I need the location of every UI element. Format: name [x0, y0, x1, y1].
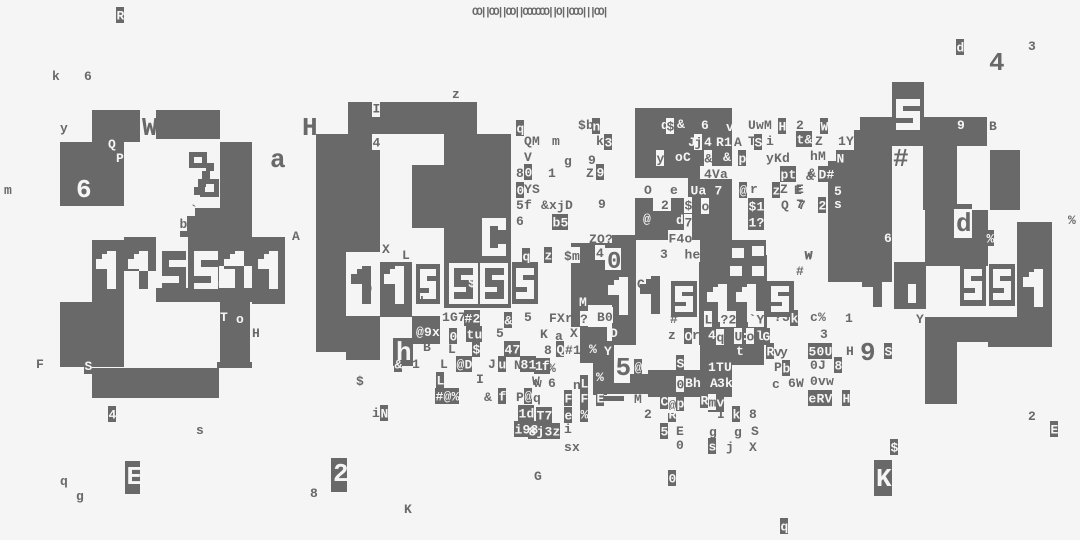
svg-text:E: E	[794, 183, 802, 198]
svg-text:k: k	[733, 408, 741, 423]
svg-text:E: E	[127, 462, 143, 492]
svg-text:t: t	[736, 344, 744, 359]
svg-text:1: 1	[724, 135, 732, 150]
svg-text:P: P	[116, 151, 124, 166]
svg-text:?: ?	[605, 232, 613, 247]
svg-text:t: t	[797, 133, 805, 148]
svg-text:Q: Q	[108, 137, 116, 152]
svg-text:S: S	[677, 357, 685, 372]
svg-text:Q: Q	[781, 198, 789, 213]
svg-text:%: %	[1068, 213, 1076, 228]
svg-text:s: s	[196, 423, 204, 438]
svg-text:5: 5	[616, 353, 632, 383]
svg-text:g: g	[564, 154, 572, 169]
svg-text:f: f	[524, 198, 532, 213]
svg-text:r: r	[750, 182, 758, 197]
svg-text:H: H	[252, 326, 260, 341]
svg-text:Z: Z	[586, 166, 594, 181]
svg-text:s: s	[564, 440, 572, 455]
svg-text:8: 8	[749, 407, 757, 422]
svg-text:K: K	[774, 151, 782, 166]
svg-text:F: F	[565, 392, 573, 407]
svg-text:Y: Y	[916, 312, 924, 327]
svg-text:a: a	[270, 145, 286, 175]
svg-text:@: @	[643, 212, 651, 227]
svg-text:F: F	[549, 311, 557, 326]
svg-text:i: i	[372, 406, 380, 421]
svg-text:w: w	[826, 374, 834, 389]
svg-text:z: z	[545, 249, 553, 264]
svg-text:#: #	[465, 312, 473, 327]
svg-text:`: `	[190, 203, 198, 218]
svg-text:4: 4	[505, 343, 513, 358]
svg-text:G: G	[450, 310, 458, 325]
svg-text:#: #	[565, 343, 573, 358]
svg-text:3: 3	[820, 327, 828, 342]
svg-text:z: z	[668, 328, 676, 343]
svg-text:E: E	[1051, 423, 1059, 438]
svg-text:X: X	[557, 311, 565, 326]
svg-text:D: D	[465, 358, 473, 373]
svg-text:S: S	[885, 345, 893, 360]
svg-text:F: F	[669, 232, 677, 247]
svg-text:W: W	[805, 249, 813, 264]
svg-text:I: I	[476, 372, 484, 387]
svg-text:1: 1	[749, 216, 757, 231]
svg-text:@: @	[635, 361, 643, 376]
svg-text:B: B	[597, 310, 605, 325]
svg-text:r: r	[565, 311, 573, 326]
svg-text:?: ?	[757, 216, 765, 231]
svg-text:&: &	[705, 152, 713, 167]
svg-text:B: B	[989, 119, 997, 134]
svg-text:&: &	[484, 390, 492, 405]
svg-text:y: y	[60, 121, 68, 136]
svg-text:&: &	[505, 314, 513, 329]
svg-text:M: M	[532, 134, 540, 149]
svg-text:7: 7	[545, 409, 553, 424]
svg-text:W: W	[142, 113, 158, 143]
svg-text:B: B	[423, 340, 431, 355]
svg-text:?: ?	[721, 313, 729, 328]
svg-text:B: B	[685, 376, 693, 391]
svg-text:8: 8	[521, 358, 529, 373]
svg-text:`: `	[749, 313, 757, 328]
svg-text:Y: Y	[524, 182, 532, 197]
svg-text:q: q	[533, 391, 541, 406]
svg-text:J: J	[488, 357, 496, 372]
svg-text:Y: Y	[604, 344, 612, 359]
svg-text:v: v	[818, 374, 826, 389]
svg-text:0: 0	[810, 358, 818, 373]
svg-text:j: j	[726, 440, 734, 455]
svg-text:h: h	[810, 149, 818, 164]
svg-text:y: y	[780, 345, 788, 360]
svg-text:%: %	[589, 342, 597, 357]
svg-text:E: E	[676, 424, 684, 439]
svg-text:0: 0	[669, 472, 677, 487]
svg-text:q: q	[717, 331, 725, 346]
svg-text:w: w	[756, 118, 764, 133]
svg-text:4: 4	[708, 328, 716, 343]
svg-text:0: 0	[607, 249, 621, 276]
svg-text:Z: Z	[815, 134, 823, 149]
svg-text:H: H	[302, 113, 318, 143]
svg-text:1: 1	[845, 311, 853, 326]
svg-text:V: V	[825, 392, 833, 407]
svg-text:#: #	[670, 312, 678, 327]
svg-text:2: 2	[333, 459, 349, 489]
svg-text:i: i	[564, 422, 572, 437]
svg-text:y: y	[766, 151, 774, 166]
svg-text:N: N	[837, 152, 845, 167]
svg-text:D: D	[610, 326, 618, 341]
svg-text:j: j	[557, 199, 565, 214]
svg-text:W: W	[796, 376, 804, 391]
svg-text:6: 6	[76, 175, 92, 205]
svg-text:Q: Q	[524, 134, 532, 149]
svg-text:C: C	[661, 395, 669, 410]
svg-text:s: s	[709, 440, 717, 455]
svg-text:$: $	[685, 199, 693, 214]
svg-text:y: y	[657, 152, 665, 167]
svg-text:@: @	[740, 184, 748, 199]
svg-text:4: 4	[989, 48, 1005, 78]
svg-text:@: @	[525, 390, 533, 405]
svg-text:$: $	[891, 441, 899, 456]
svg-text:U: U	[691, 184, 699, 199]
svg-text:u: u	[475, 328, 483, 343]
svg-text:c: c	[810, 310, 818, 325]
svg-text:&: &	[805, 133, 813, 148]
svg-text:V: V	[712, 167, 720, 182]
svg-text:i: i	[766, 134, 774, 149]
svg-text:3: 3	[545, 425, 553, 440]
svg-text:2: 2	[819, 199, 827, 214]
svg-text:v: v	[726, 120, 734, 135]
svg-text:r: r	[692, 328, 700, 343]
svg-text:q: q	[781, 520, 789, 535]
svg-text:Z: Z	[780, 182, 788, 197]
svg-text:D: D	[565, 198, 573, 213]
svg-text:%: %	[818, 310, 826, 325]
svg-text:4: 4	[704, 135, 712, 150]
svg-text:%: %	[548, 361, 556, 376]
svg-text:k: k	[52, 69, 60, 84]
svg-text:S: S	[532, 182, 540, 197]
svg-text:1: 1	[757, 200, 765, 215]
svg-text:F: F	[36, 357, 44, 372]
svg-text:S: S	[85, 359, 93, 374]
svg-text:1: 1	[442, 310, 450, 325]
svg-text:4: 4	[704, 167, 712, 182]
svg-text:%: %	[452, 390, 460, 405]
svg-text:F: F	[581, 392, 589, 407]
svg-text:2: 2	[1028, 409, 1036, 424]
svg-text:@: @	[457, 358, 465, 373]
svg-text:L: L	[581, 377, 589, 392]
svg-text:u: u	[416, 292, 424, 307]
svg-text:&: &	[808, 166, 816, 181]
svg-text:d: d	[956, 209, 972, 239]
svg-text:3: 3	[605, 136, 613, 151]
svg-text:1: 1	[573, 343, 581, 358]
svg-text:X: X	[749, 440, 757, 455]
svg-text:o: o	[675, 150, 683, 165]
svg-text:9: 9	[597, 166, 605, 181]
svg-text:R: R	[716, 135, 724, 150]
svg-text:w: w	[534, 376, 542, 391]
svg-text:6: 6	[788, 376, 796, 391]
svg-text:?: ?	[774, 310, 782, 325]
svg-text:K: K	[404, 502, 412, 517]
svg-text:g: g	[709, 425, 717, 440]
svg-text:3: 3	[717, 376, 725, 391]
svg-text:a: a	[699, 184, 707, 199]
svg-text:8: 8	[544, 343, 552, 358]
svg-text:C: C	[637, 277, 645, 292]
svg-text:#: #	[796, 264, 804, 279]
svg-text:7: 7	[685, 216, 693, 231]
svg-text:$: $	[468, 276, 476, 291]
svg-text:9: 9	[424, 325, 432, 340]
svg-text:%: %	[596, 370, 604, 385]
svg-text:5: 5	[524, 310, 532, 325]
svg-text:L: L	[402, 248, 410, 263]
svg-text:L: L	[448, 342, 456, 357]
svg-text:1: 1	[519, 407, 527, 422]
svg-text:j: j	[695, 136, 703, 151]
svg-text:s: s	[834, 197, 842, 212]
svg-text:x: x	[572, 440, 580, 455]
svg-text:@: @	[416, 325, 424, 340]
svg-text:A: A	[734, 135, 742, 150]
svg-text:%: %	[581, 408, 589, 423]
svg-text:Q: Q	[557, 343, 565, 358]
svg-text:5: 5	[516, 198, 524, 213]
svg-text:7: 7	[796, 197, 804, 212]
svg-text:u: u	[499, 358, 507, 373]
svg-text:U: U	[724, 360, 732, 375]
svg-text:Z: Z	[589, 232, 597, 247]
svg-text:U: U	[748, 118, 756, 133]
svg-text:o: o	[685, 232, 693, 247]
svg-text:k: k	[791, 312, 799, 327]
svg-text:0: 0	[605, 310, 613, 325]
svg-text:%: %	[987, 232, 995, 247]
svg-text:S: S	[755, 136, 763, 151]
svg-text:t: t	[467, 328, 475, 343]
svg-text:d: d	[527, 407, 535, 422]
svg-text:Y: Y	[757, 313, 765, 328]
svg-text:&: &	[541, 198, 549, 213]
svg-text:n: n	[593, 120, 601, 135]
svg-text:8: 8	[529, 425, 537, 440]
svg-text:9: 9	[860, 338, 876, 368]
svg-text:z: z	[452, 87, 460, 102]
svg-text:#: #	[436, 390, 444, 405]
svg-text:0: 0	[810, 374, 818, 389]
svg-text:2: 2	[729, 313, 737, 328]
svg-text:Y: Y	[846, 134, 854, 149]
svg-text:?: ?	[580, 312, 588, 327]
svg-text:g: g	[734, 425, 742, 440]
svg-text:9: 9	[598, 197, 606, 212]
svg-text:$: $	[667, 120, 675, 135]
svg-text:C: C	[683, 150, 691, 165]
svg-text:3: 3	[782, 310, 790, 325]
svg-text:o: o	[702, 200, 710, 215]
svg-text:x: x	[549, 198, 557, 213]
svg-text:7: 7	[715, 184, 723, 199]
svg-text:e: e	[809, 392, 817, 407]
svg-text:b: b	[553, 216, 561, 231]
svg-text:#: #	[893, 144, 909, 174]
svg-text:M: M	[764, 118, 772, 133]
svg-text:1: 1	[708, 360, 716, 375]
svg-text:i: i	[515, 423, 523, 438]
svg-text:8: 8	[516, 166, 524, 181]
svg-text:N: N	[381, 407, 389, 422]
svg-text:W: W	[821, 120, 829, 135]
svg-text:g: g	[76, 489, 84, 504]
svg-text:5: 5	[661, 425, 669, 440]
svg-text:O: O	[597, 232, 605, 247]
svg-text:J: J	[818, 358, 826, 373]
svg-text:G: G	[763, 330, 771, 345]
svg-text:P: P	[774, 360, 782, 375]
svg-text:D: D	[819, 168, 827, 183]
svg-text:L: L	[440, 357, 448, 372]
svg-text:0: 0	[525, 166, 533, 181]
svg-text:L: L	[705, 313, 713, 328]
svg-text:u: u	[218, 277, 226, 292]
svg-text:H: H	[779, 120, 787, 135]
svg-text:1: 1	[838, 134, 846, 149]
svg-text:G: G	[534, 469, 542, 484]
svg-text:p: p	[739, 152, 747, 167]
svg-text:1: 1	[412, 357, 420, 372]
svg-text:4: 4	[373, 136, 381, 151]
svg-text:q: q	[60, 474, 68, 489]
svg-text:$: $	[749, 200, 757, 215]
svg-text:z: z	[553, 425, 561, 440]
svg-text:M: M	[579, 295, 587, 310]
svg-text:9: 9	[957, 118, 965, 133]
svg-text:H: H	[846, 344, 854, 359]
svg-text:6: 6	[548, 376, 556, 391]
svg-text:OO||OO||OO||OOOOOO||O||OOO|||O: OO||OO||OO||OOOOOO||O||OOO|||OO|	[472, 7, 606, 19]
svg-text:h: h	[693, 376, 701, 391]
svg-text:a: a	[720, 167, 728, 182]
svg-text:x: x	[432, 325, 440, 340]
svg-text:d: d	[782, 151, 790, 166]
svg-text:0: 0	[676, 438, 684, 453]
svg-text:X: X	[570, 326, 578, 341]
svg-text:$: $	[578, 118, 586, 133]
svg-text:T: T	[716, 360, 724, 375]
svg-text:L: L	[437, 374, 445, 389]
svg-text:m: m	[4, 183, 12, 198]
svg-text:b: b	[783, 362, 791, 377]
svg-text:t: t	[789, 168, 797, 183]
svg-text:O: O	[644, 183, 652, 198]
svg-text:4: 4	[677, 232, 685, 247]
svg-text:f: f	[499, 390, 507, 405]
svg-text:R: R	[817, 392, 825, 407]
svg-text:4: 4	[109, 408, 117, 423]
svg-text:#: #	[827, 168, 835, 183]
svg-text:M: M	[634, 392, 642, 407]
svg-text:1: 1	[548, 166, 556, 181]
svg-text:K: K	[540, 327, 548, 342]
svg-text:M: M	[818, 149, 826, 164]
svg-text:m: m	[572, 249, 580, 264]
svg-text:P: P	[516, 390, 524, 405]
svg-text:8: 8	[310, 486, 318, 501]
svg-text:5: 5	[561, 216, 569, 231]
svg-text:h: h	[396, 338, 412, 368]
svg-text:E: E	[597, 392, 605, 407]
svg-text:p: p	[677, 397, 685, 412]
svg-text:o: o	[747, 330, 755, 345]
svg-text:e: e	[670, 183, 678, 198]
svg-text:0: 0	[677, 378, 685, 393]
svg-text:k: k	[725, 376, 733, 391]
svg-text:e: e	[693, 248, 701, 263]
svg-text:o: o	[236, 312, 244, 327]
svg-text:$: $	[356, 374, 364, 389]
svg-text:0: 0	[365, 282, 373, 297]
svg-text:5: 5	[496, 326, 504, 341]
svg-text:q: q	[523, 250, 531, 265]
svg-text:h: h	[685, 248, 693, 263]
svg-text:I: I	[717, 407, 725, 422]
svg-text:T: T	[220, 310, 228, 325]
svg-text:6: 6	[84, 69, 92, 84]
svg-text:2: 2	[473, 312, 481, 327]
svg-text:R: R	[669, 408, 677, 423]
svg-text:&: &	[723, 150, 731, 165]
svg-text:2: 2	[796, 118, 804, 133]
svg-text:m: m	[552, 134, 560, 149]
svg-text:c: c	[772, 377, 780, 392]
svg-text:k: k	[596, 134, 604, 149]
svg-text:7: 7	[513, 343, 521, 358]
svg-text:j: j	[537, 425, 545, 440]
svg-text:8: 8	[835, 359, 843, 374]
svg-text:@: @	[444, 390, 452, 405]
svg-text:T: T	[537, 409, 545, 424]
svg-text:3: 3	[660, 247, 668, 262]
svg-text:6: 6	[701, 118, 709, 133]
svg-text:2: 2	[661, 198, 669, 213]
svg-text:$: $	[473, 343, 481, 358]
svg-text:H: H	[843, 392, 851, 407]
svg-text:m: m	[709, 396, 717, 411]
svg-text:3: 3	[1028, 39, 1036, 54]
svg-text:V: V	[524, 150, 532, 165]
svg-text:d: d	[676, 213, 684, 228]
svg-text:p: p	[781, 168, 789, 183]
svg-text:I: I	[373, 102, 381, 117]
svg-text:R: R	[701, 394, 709, 409]
svg-text:d: d	[957, 41, 965, 56]
svg-text:A: A	[292, 229, 300, 244]
svg-text:K: K	[876, 464, 892, 494]
svg-text:2: 2	[644, 407, 652, 422]
svg-text:$: $	[564, 249, 572, 264]
